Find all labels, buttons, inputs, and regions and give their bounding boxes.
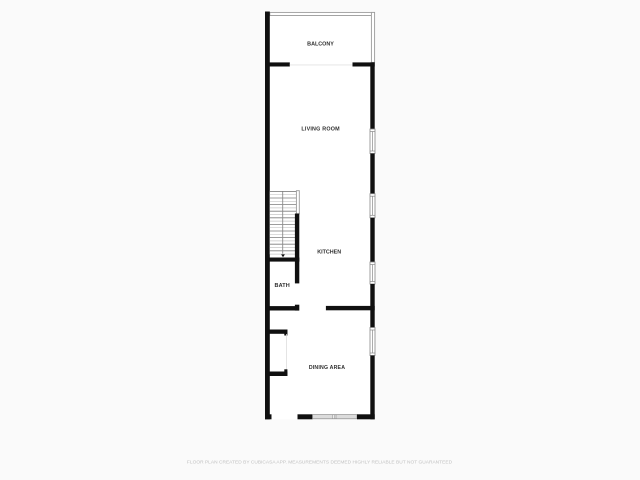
svg-text:BALCONY: BALCONY [307, 42, 334, 48]
svg-text:BATH: BATH [275, 283, 290, 289]
svg-text:FLOOR PLAN CREATED BY CUBICASA: FLOOR PLAN CREATED BY CUBICASA APP. MEAS… [187, 460, 453, 466]
svg-text:DINING AREA: DINING AREA [309, 365, 345, 371]
svg-text:KITCHEN: KITCHEN [317, 250, 341, 256]
svg-text:LIVING ROOM: LIVING ROOM [301, 127, 340, 133]
